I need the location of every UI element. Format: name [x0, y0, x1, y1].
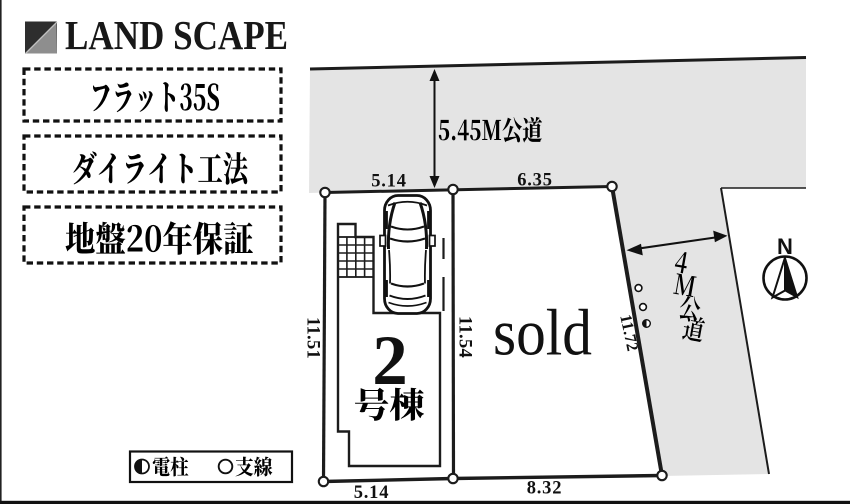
svg-text:sold: sold: [493, 297, 592, 370]
svg-text:8.32: 8.32: [527, 479, 563, 499]
svg-text:LAND SCAPE: LAND SCAPE: [65, 12, 288, 58]
svg-text:11.54: 11.54: [455, 316, 475, 358]
svg-text:5.14: 5.14: [354, 483, 390, 503]
svg-text:2: 2: [372, 322, 408, 400]
svg-text:N: N: [777, 234, 793, 259]
svg-text:11.51: 11.51: [303, 317, 323, 359]
svg-text:5.14: 5.14: [371, 172, 407, 192]
svg-text:6.35: 6.35: [517, 171, 553, 191]
